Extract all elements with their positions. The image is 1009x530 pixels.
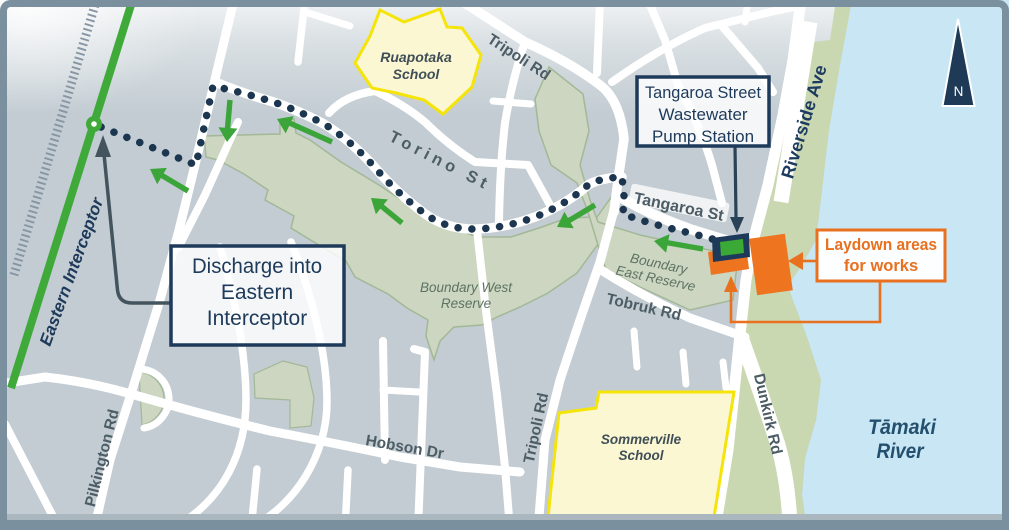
svg-text:Boundary West: Boundary West (420, 280, 513, 295)
svg-text:River: River (877, 440, 926, 463)
svg-text:School: School (393, 66, 441, 82)
svg-text:Pump Station: Pump Station (652, 127, 754, 146)
svg-text:N: N (954, 84, 964, 99)
svg-text:School: School (618, 448, 663, 463)
svg-text:Interceptor: Interceptor (207, 307, 307, 330)
svg-text:Ruapotaka: Ruapotaka (380, 49, 452, 65)
svg-text:for works: for works (844, 257, 918, 275)
svg-text:Sommerville: Sommerville (601, 432, 682, 447)
svg-text:Discharge into: Discharge into (192, 255, 322, 278)
svg-text:Eastern: Eastern (221, 281, 293, 304)
svg-text:Tangaroa Street: Tangaroa Street (645, 83, 761, 102)
svg-text:Tāmaki: Tāmaki (868, 416, 937, 439)
svg-text:Wastewater: Wastewater (658, 105, 747, 124)
svg-text:Laydown areas: Laydown areas (825, 236, 937, 254)
svg-text:Reserve: Reserve (441, 296, 491, 311)
